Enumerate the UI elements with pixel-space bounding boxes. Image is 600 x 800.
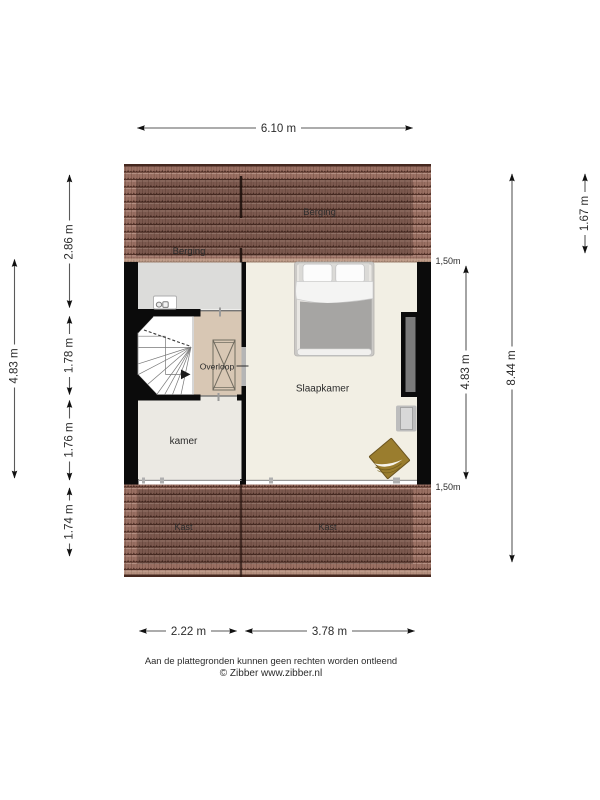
svg-text:© Zibber www.zibber.nl: © Zibber www.zibber.nl (220, 668, 322, 679)
svg-text:Aan de plattegronden kunnen ge: Aan de plattegronden kunnen geen rechten… (145, 655, 397, 666)
svg-text:4.83 m: 4.83 m (9, 348, 21, 383)
svg-text:Berging: Berging (173, 246, 206, 257)
svg-text:3.78 m: 3.78 m (312, 626, 347, 638)
svg-text:Berging: Berging (303, 207, 336, 218)
svg-text:1.67 m: 1.67 m (579, 196, 591, 231)
svg-text:8.44 m: 8.44 m (506, 350, 518, 385)
svg-text:1,50m: 1,50m (436, 256, 461, 266)
svg-text:1.74 m: 1.74 m (64, 504, 76, 539)
svg-text:1,50m: 1,50m (436, 482, 461, 492)
svg-text:1.78 m: 1.78 m (64, 338, 76, 373)
svg-text:4.83 m: 4.83 m (460, 354, 472, 389)
svg-text:2.22 m: 2.22 m (171, 626, 206, 638)
svg-text:Overloop: Overloop (200, 362, 235, 372)
svg-text:6.10 m: 6.10 m (261, 123, 296, 135)
svg-text:kamer: kamer (170, 436, 198, 447)
svg-text:1.76 m: 1.76 m (64, 422, 76, 457)
svg-text:Kast: Kast (174, 522, 193, 532)
svg-text:Kast: Kast (318, 522, 337, 532)
svg-text:Slaapkamer: Slaapkamer (296, 384, 350, 395)
svg-text:2.86 m: 2.86 m (64, 224, 76, 259)
